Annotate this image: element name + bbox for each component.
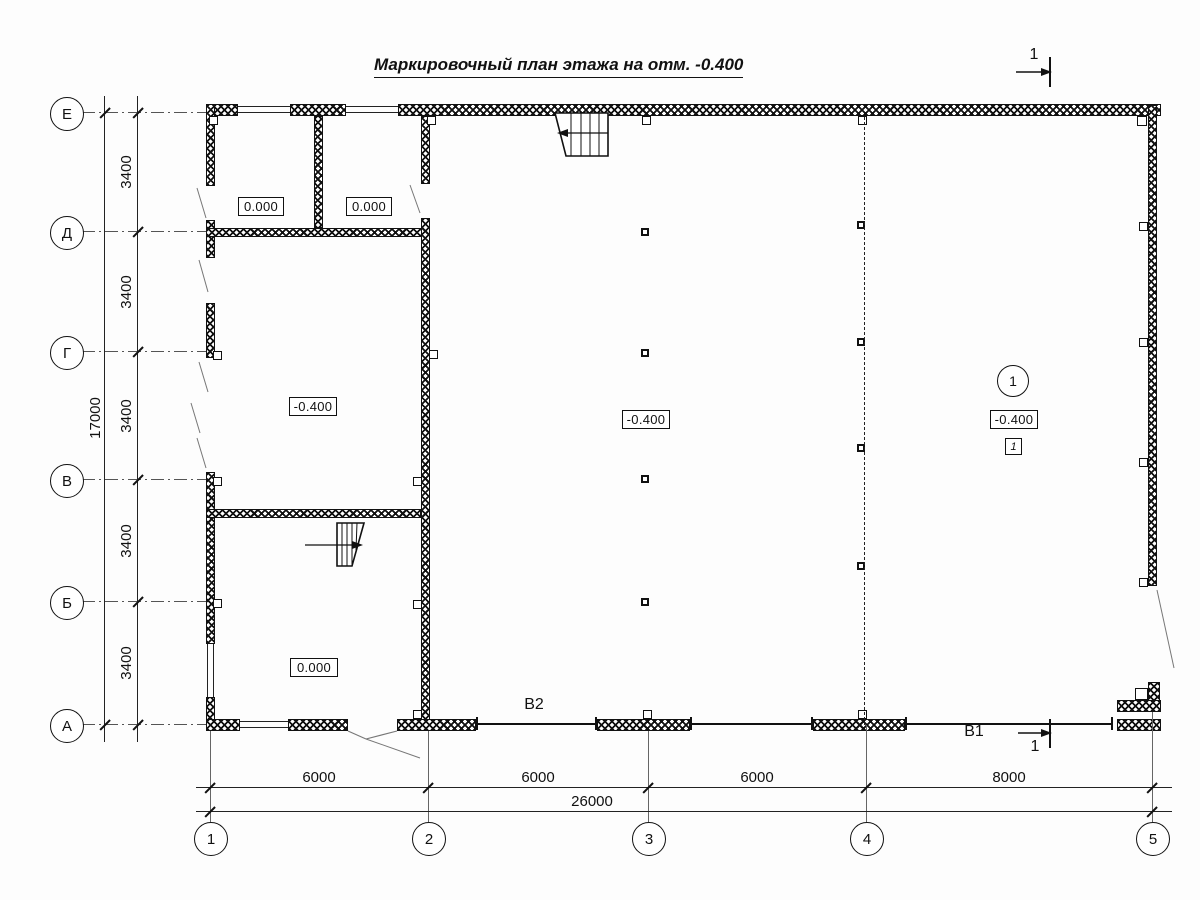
stair-flight-middle — [305, 523, 364, 566]
leader-lines — [191, 185, 1174, 758]
floor-plan-drawing: Маркировочный план этажа на отм. -0.400 — [0, 0, 1200, 900]
section-mark-top — [1016, 57, 1052, 87]
section-mark-bottom — [1018, 719, 1052, 748]
door-opening-mark — [348, 731, 397, 739]
stair-flight-top — [555, 113, 608, 156]
drawing-overlay — [0, 0, 1200, 900]
